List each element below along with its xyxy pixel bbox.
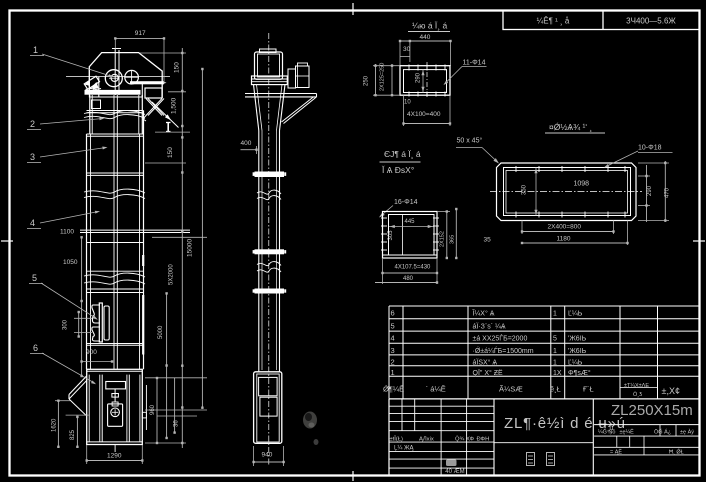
svg-text:940: 940	[262, 452, 273, 459]
svg-text:480: 480	[403, 276, 414, 282]
svg-text:2X152: 2X152	[440, 231, 446, 247]
svg-text:±á ХХ25ЃБ=2000: ±á ХХ25ЃБ=2000	[473, 334, 528, 343]
svg-text:Φ¶ѕÆ°: Φ¶ѕÆ°	[568, 369, 591, 377]
svg-text:3: 3	[391, 346, 395, 355]
svg-text:2: 2	[30, 119, 35, 129]
svg-text:1: 1	[553, 359, 557, 366]
svg-text:5: 5	[553, 336, 557, 343]
svg-text:'Ж6IЬ: 'Ж6IЬ	[568, 336, 587, 343]
svg-text:ÖĞ Á¿: ÖĞ Á¿	[654, 429, 671, 436]
svg-text:±ę Àý: ±ę Àý	[680, 429, 694, 436]
svg-text:4: 4	[391, 334, 395, 343]
svg-text:350: 350	[522, 184, 528, 195]
svg-text:2X125=250: 2X125=250	[380, 63, 386, 91]
svg-text:Ĭ Ѧ ĐѕХ°: Ĭ Ѧ ĐѕХ°	[381, 165, 414, 175]
svg-text:470: 470	[665, 187, 671, 198]
svg-text:4X100=400: 4X100=400	[407, 111, 441, 118]
svg-text:1100: 1100	[60, 229, 74, 236]
svg-text:1098: 1098	[574, 181, 590, 188]
svg-text:±ŧǏ(Ł): ±ŧǏ(Ł)	[390, 436, 404, 443]
svg-text:290: 290	[416, 72, 422, 83]
svg-text:400: 400	[241, 140, 252, 147]
svg-text:Ò¸Ƽ: Ò¸Ƽ	[633, 391, 642, 398]
svg-text:1: 1	[553, 311, 557, 318]
svg-text:Ľ¼Ь: Ľ¼Ь	[568, 359, 583, 366]
svg-text:5: 5	[32, 273, 37, 283]
svg-text:6: 6	[33, 343, 38, 353]
svg-text:·Ǿ±á¼ЃБ=1500mm: ·Ǿ±á¼ЃБ=1500mm	[473, 346, 534, 355]
svg-text:3Ч400—5.6Ж: 3Ч400—5.6Ж	[626, 17, 676, 26]
svg-text:1050: 1050	[63, 259, 78, 266]
svg-text:1290: 1290	[107, 453, 122, 460]
svg-text:ĕ¸Ł: ĕ¸Ł	[550, 385, 561, 394]
svg-text:Ǭ¾ ХФ: Ǭ¾ ХФ	[455, 436, 475, 443]
svg-text:ZL250X15m: ZL250X15m	[611, 402, 693, 419]
svg-text:445: 445	[405, 219, 416, 225]
svg-text:1: 1	[33, 45, 38, 55]
svg-text:35: 35	[484, 237, 492, 244]
svg-text:30: 30	[403, 46, 411, 53]
svg-text:40 ÆМ: 40 ÆМ	[445, 469, 464, 475]
svg-text:áЇ·З¨ѕ´ ¼Ѧ: áЇ·З¨ѕ´ ¼Ѧ	[473, 322, 506, 330]
svg-text:305: 305	[388, 230, 394, 241]
svg-text:50 x 45°: 50 x 45°	[457, 137, 483, 145]
svg-text:150: 150	[174, 62, 181, 73]
svg-text:1180: 1180	[557, 236, 571, 243]
svg-text:4: 4	[30, 218, 35, 228]
svg-text:5000: 5000	[158, 325, 164, 339]
svg-text:4X107.5=430: 4X107.5=430	[395, 265, 432, 271]
svg-text:¼ю á Ї¸ á: ¼ю á Ї¸ á	[412, 21, 447, 31]
svg-text:10: 10	[404, 100, 411, 106]
svg-text:= ĄĔ: = ĄĔ	[610, 448, 622, 456]
svg-text:1: 1	[391, 368, 395, 377]
svg-text:36: 36	[174, 420, 180, 427]
svg-text:1,500: 1,500	[171, 97, 178, 114]
svg-text:16-Φ14: 16-Φ14	[394, 199, 418, 206]
svg-text:900: 900	[86, 349, 97, 356]
svg-text:Ғ´Ł: Ғ´Ł	[583, 385, 594, 394]
svg-text:ЄЈ¶ á Ї¸ á: ЄЈ¶ á Ї¸ á	[384, 149, 421, 159]
svg-text:Ã¼ЅÆ: Ã¼ЅÆ	[499, 385, 523, 394]
svg-text:'Ж6IЬ: 'Ж6IЬ	[568, 348, 587, 355]
svg-text:±Т¼Х±ΛЕ: ±Т¼Х±ΛЕ	[624, 383, 649, 389]
svg-text:150: 150	[167, 147, 174, 158]
svg-text:10-Φ18: 10-Φ18	[638, 145, 662, 152]
svg-text:5X2000: 5X2000	[169, 264, 175, 285]
svg-text:440: 440	[420, 34, 431, 41]
svg-text:825: 825	[70, 429, 76, 440]
svg-text:1X: 1X	[553, 370, 562, 377]
svg-text:11-Φ14: 11-Φ14	[463, 60, 486, 67]
svg-text:Ļ¼ ЖĄ: Ļ¼ ЖĄ	[394, 446, 415, 452]
svg-text:2: 2	[391, 357, 395, 366]
svg-text:3: 3	[30, 152, 35, 162]
svg-text:365: 365	[450, 235, 456, 244]
svg-text:15000: 15000	[187, 239, 194, 257]
svg-text:6: 6	[391, 309, 395, 318]
svg-text:Ǿ¶¼Ĕ: Ǿ¶¼Ĕ	[383, 385, 404, 394]
svg-text:Ľ¼Ь: Ľ¼Ь	[568, 311, 583, 318]
svg-text:áЇЅХ° Ѧ: áЇЅХ° Ѧ	[473, 358, 498, 366]
svg-text:¼Ê¶ ¹ ¸ å: ¼Ê¶ ¹ ¸ å	[537, 17, 570, 26]
svg-text:±,Х¢: ±,Х¢	[662, 386, 680, 396]
svg-text:¤Ǿ½Ѧ¾ ¹ʹ ¸: ¤Ǿ½Ѧ¾ ¹ʹ ¸	[549, 122, 592, 132]
svg-text:250: 250	[364, 75, 370, 86]
svg-text:ĄЛхіх: ĄЛхіх	[419, 437, 434, 443]
svg-text:ǪЇ" Х° ƵЁ: ǪЇ" Х° ƵЁ	[473, 369, 504, 377]
svg-text:2X400=800: 2X400=800	[548, 224, 582, 231]
svg-text:±ę¼Ĕ: ±ę¼Ĕ	[620, 428, 635, 436]
svg-text:¼Ğ Ņȱ: ¼Ğ Ņȱ	[598, 429, 615, 436]
svg-text:917: 917	[135, 30, 146, 37]
svg-text:960: 960	[150, 404, 156, 415]
svg-text:Ħ¸ ǾŁ: Ħ¸ ǾŁ	[669, 449, 684, 456]
svg-text:ĐФΗ: ĐФΗ	[477, 437, 490, 443]
svg-text:Ĭ¼Х° Ѧ: Ĭ¼Х° Ѧ	[472, 309, 495, 318]
svg-text:´ á¼Ĕ: ´ á¼Ĕ	[426, 385, 446, 394]
svg-text:290: 290	[647, 185, 653, 196]
svg-text:1: 1	[553, 348, 557, 355]
svg-text:300: 300	[63, 319, 69, 330]
svg-text:5: 5	[391, 321, 395, 330]
svg-text:1620: 1620	[52, 418, 58, 432]
